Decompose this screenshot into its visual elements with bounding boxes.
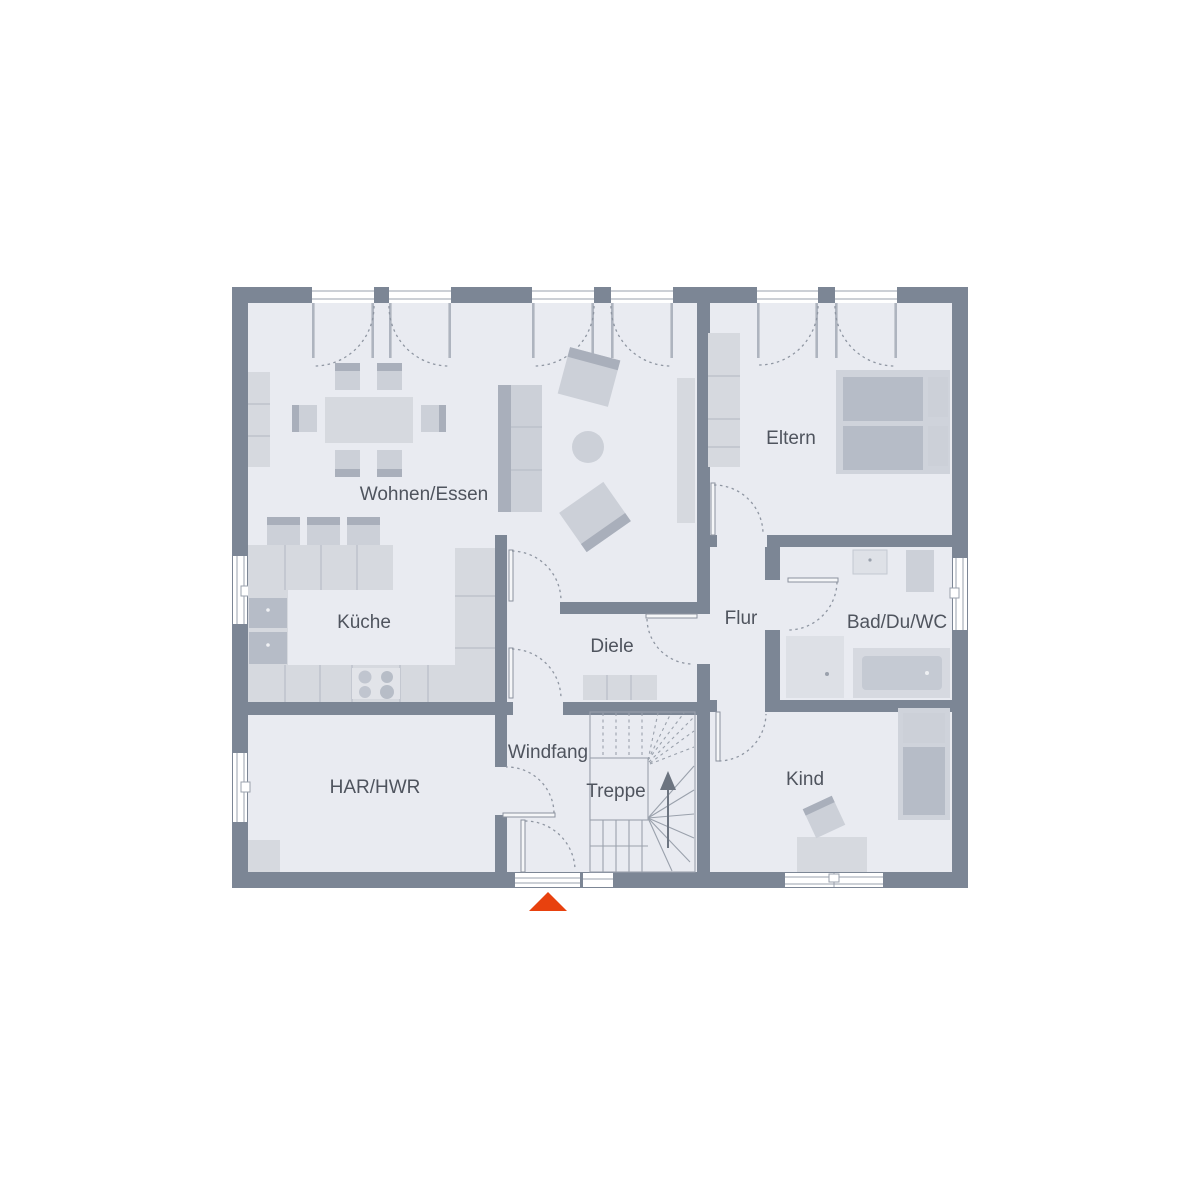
entrance-marker-icon (529, 892, 567, 911)
sofa (498, 385, 542, 512)
room-label-diele: Diele (590, 636, 633, 657)
door-leaf (509, 648, 513, 698)
toilet (853, 550, 887, 574)
door-leaf (646, 614, 697, 618)
floor-plan-svg: Wohnen/Essen Küche Eltern Flur Bad/Du/WC… (0, 0, 1200, 1200)
room-label-har-hwr: HAR/HWR (330, 777, 421, 798)
room-label-kind: Kind (786, 769, 824, 790)
shelf (677, 378, 695, 523)
oven (249, 632, 287, 664)
room-label-kueche: Küche (337, 612, 391, 633)
dining-chair (377, 363, 402, 390)
floor-plan-page: Wohnen/Essen Küche Eltern Flur Bad/Du/WC… (0, 0, 1200, 1200)
room-label-eltern: Eltern (766, 428, 816, 449)
room-label-bad: Bad/Du/WC (847, 612, 947, 633)
door-leaf (716, 712, 720, 761)
dining-chair (335, 450, 360, 477)
double-bed (836, 370, 950, 474)
bathtub (853, 648, 950, 698)
coffee-table (572, 431, 604, 463)
washbasin (906, 550, 934, 592)
door-leaf (711, 483, 715, 535)
hall-sideboard (583, 675, 657, 700)
room-label-treppe: Treppe (586, 781, 646, 802)
dining-chair (292, 405, 317, 432)
dining-table (325, 397, 413, 443)
shower (786, 636, 844, 698)
oven (249, 598, 287, 628)
door-leaf (509, 550, 513, 601)
entrance-door (515, 873, 613, 887)
desk (797, 837, 867, 872)
kitchen-counter (455, 548, 495, 702)
single-bed (898, 708, 950, 820)
dining-chair (377, 450, 402, 477)
sideboard (248, 372, 270, 467)
cooktop (352, 668, 400, 699)
door-leaf (788, 578, 838, 582)
dining-chair (335, 363, 360, 390)
room-label-wohnen-essen: Wohnen/Essen (360, 484, 489, 505)
door-leaf (521, 820, 525, 872)
dining-chair (421, 405, 446, 432)
door-leaf (503, 813, 555, 817)
room-label-windfang: Windfang (508, 742, 588, 763)
room-label-flur: Flur (725, 608, 758, 629)
window (785, 873, 883, 887)
utility-unit (248, 840, 280, 872)
